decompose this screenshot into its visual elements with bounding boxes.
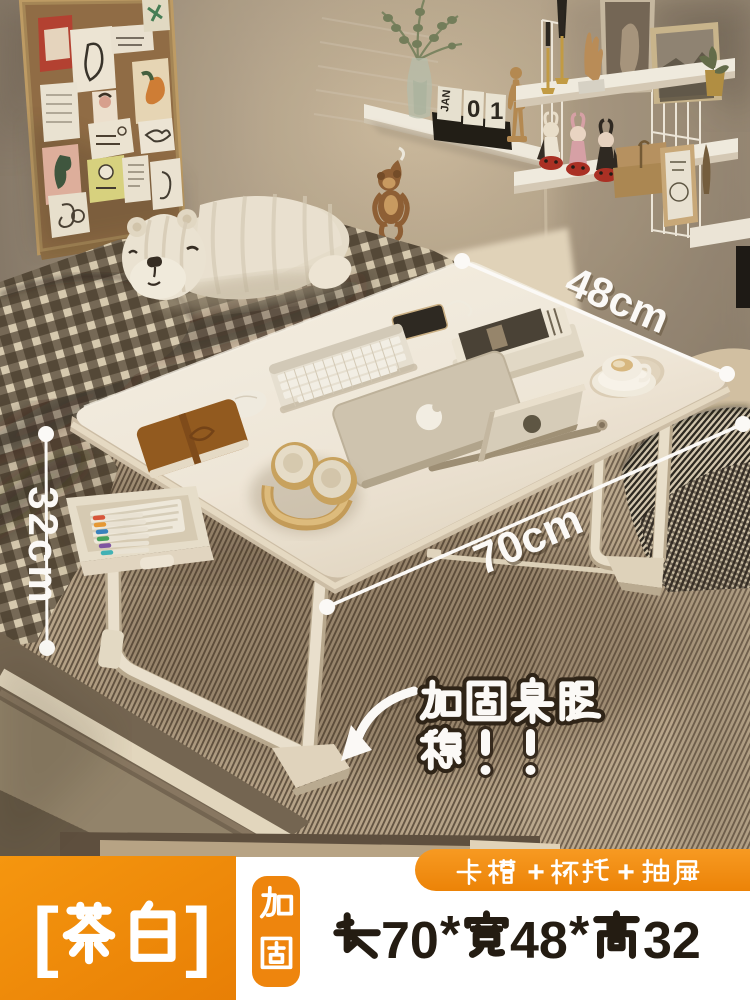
svg-text:[: [ [33,891,59,979]
svg-text:+: + [617,856,635,889]
svg-text:70: 70 [381,912,439,970]
svg-text:48: 48 [510,912,568,970]
svg-text:*: * [440,906,461,964]
svg-text:*: * [569,906,590,964]
svg-text:+: + [527,856,545,889]
svg-text:32: 32 [643,912,701,970]
svg-text:]: ] [185,891,211,979]
